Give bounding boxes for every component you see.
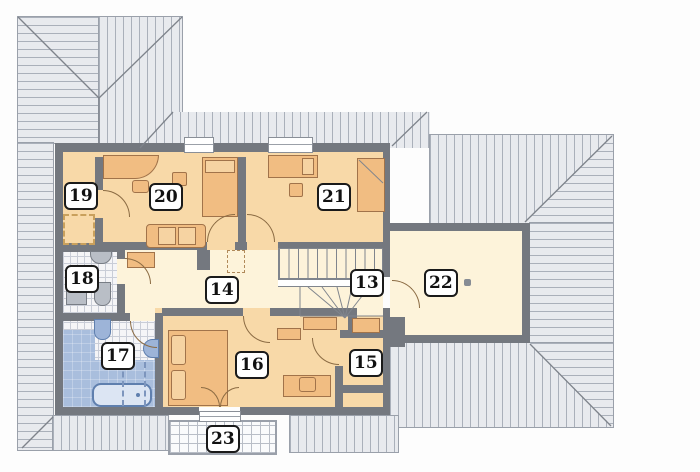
room-label-13: 13 (350, 269, 384, 297)
room-labels-layer: 1314151617181920212223 (0, 0, 700, 472)
room-label-19: 19 (64, 182, 98, 210)
room-label-14: 14 (205, 276, 239, 304)
floor-plan-canvas: 1314151617181920212223 (0, 0, 700, 472)
room-label-16: 16 (235, 351, 269, 379)
room-label-20: 20 (149, 183, 183, 211)
room-label-22: 22 (424, 269, 458, 297)
room-label-15: 15 (349, 349, 383, 377)
room-label-17: 17 (101, 342, 135, 370)
room-label-23: 23 (206, 425, 240, 453)
room-label-18: 18 (65, 265, 99, 293)
room-label-21: 21 (317, 183, 351, 211)
